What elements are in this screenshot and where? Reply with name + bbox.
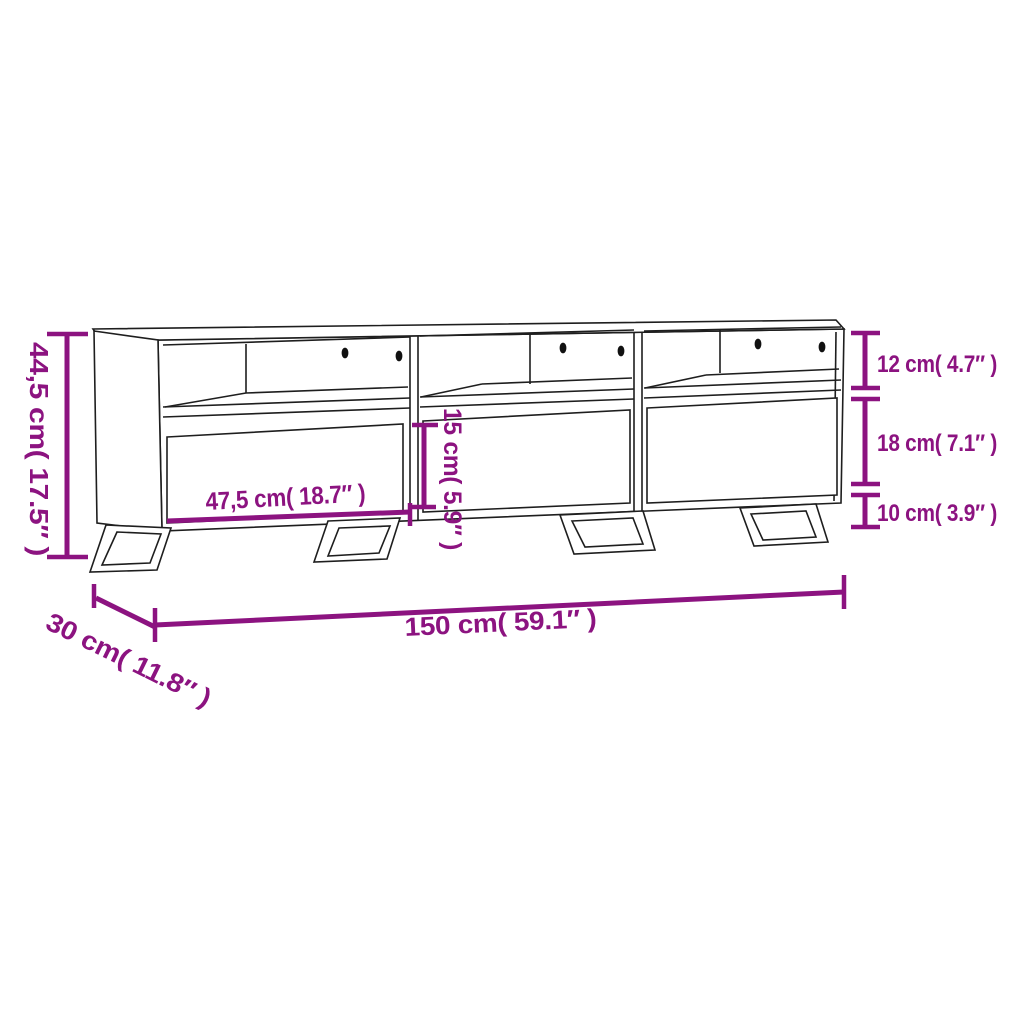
leg-3-inner [572, 518, 643, 547]
diagram-canvas: 44,5 cm( 17.5″ ) 12 cm( 4.7″ ) 18 cm( 7.… [0, 0, 1024, 1024]
label-shelf-opening: 12 cm( 4.7″ ) [877, 351, 997, 378]
cable-hole [342, 348, 349, 359]
label-width: 150 cm( 59.1″ ) [404, 603, 597, 642]
cable-hole [755, 339, 762, 350]
dimension-diagram: 44,5 cm( 17.5″ ) 12 cm( 4.7″ ) 18 cm( 7.… [0, 0, 1024, 1024]
cable-hole [560, 343, 567, 354]
label-height: 44,5 cm( 17.5″ ) [24, 342, 54, 556]
label-leg-height: 10 cm( 3.9″ ) [877, 500, 997, 527]
drawer-front [647, 398, 837, 503]
label-inner-height: 15 cm( 5.9″ ) [438, 408, 466, 550]
cabinet-drawing [90, 320, 844, 572]
dim-right-stack [851, 333, 880, 527]
leg-4-inner [751, 511, 816, 540]
cable-hole [618, 346, 625, 357]
cable-hole [819, 342, 826, 353]
cabinet-side-panel [94, 331, 162, 531]
cable-hole [396, 351, 403, 362]
dim-depth [94, 584, 155, 627]
label-drawer-front: 18 cm( 7.1″ ) [877, 430, 997, 457]
